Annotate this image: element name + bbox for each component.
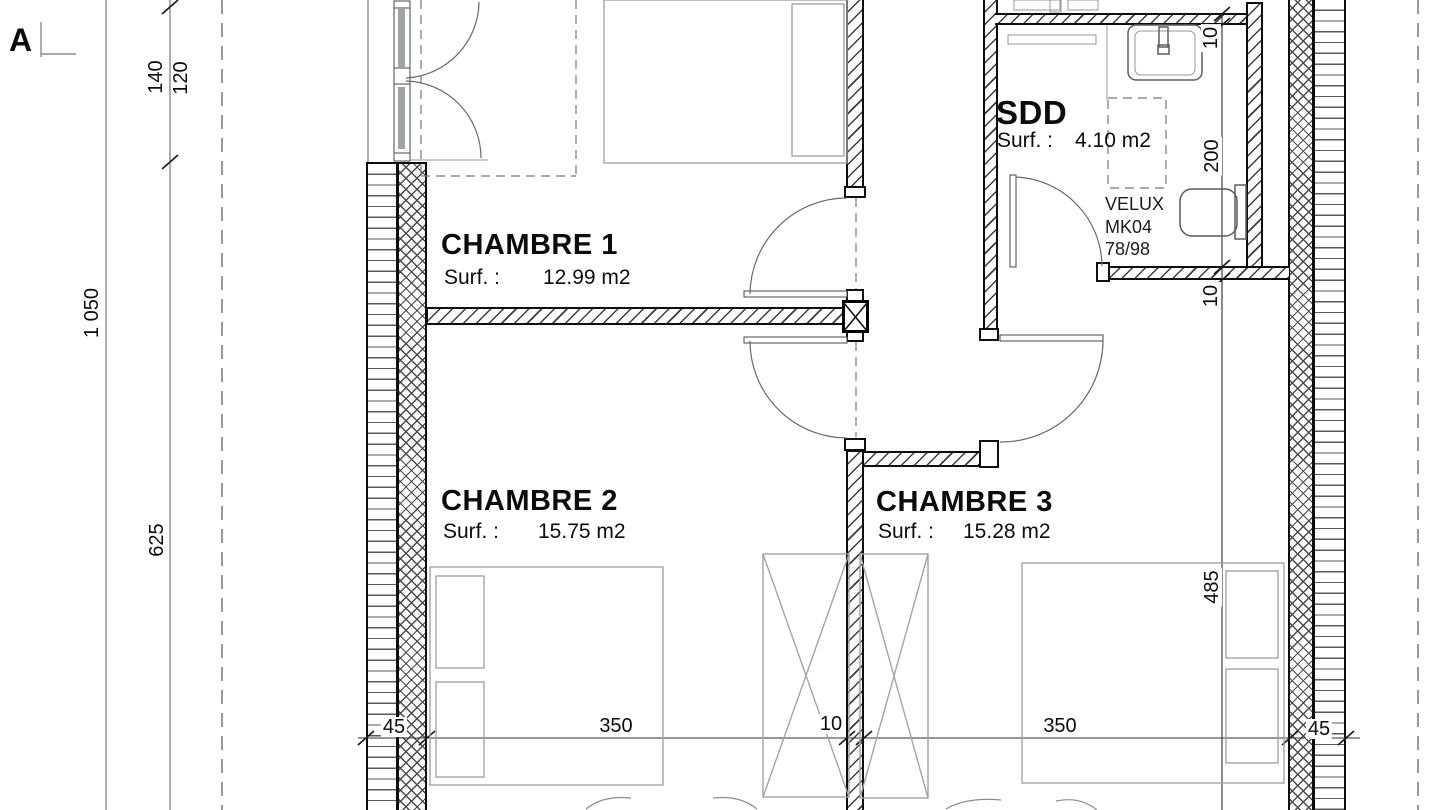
velux-label-line3: 78/98: [1105, 240, 1150, 258]
jamb-center-upper: [844, 186, 866, 198]
room-label-chambre2: CHAMBRE 2: [441, 487, 618, 516]
dim-350-right: 350: [1041, 716, 1078, 736]
section-marker-line: [41, 22, 76, 57]
dim-1050: 1 050: [82, 285, 102, 341]
wall-sdd-bottom: [1108, 266, 1289, 280]
bottom-door-arcs: [586, 797, 1097, 810]
door-arc-chambre1: [750, 198, 847, 294]
vanity-units: [1014, 0, 1098, 12]
dim-350-left: 350: [597, 716, 634, 736]
wall-exterior-right-inner-layer: [1288, 0, 1314, 810]
dim-120: 120: [171, 58, 191, 97]
surface-label-chambre2: Surf. :: [443, 521, 499, 542]
wardrobe-chambre2: [763, 554, 849, 797]
surface-label-chambre1: Surf. :: [444, 267, 500, 288]
wall-exterior-right-outer-layer: [1313, 0, 1346, 810]
room-label-chambre3: CHAMBRE 3: [876, 488, 1053, 517]
bed-chambre2: [430, 567, 663, 785]
wall-center-lower: [846, 450, 864, 810]
dim-485: 485: [1202, 567, 1222, 606]
dim-625: 625: [147, 520, 167, 559]
floor-plan-linework: [0, 0, 1440, 810]
door-arc-chambre2: [750, 341, 847, 438]
dashed-closet-outline: [421, 0, 576, 176]
jamb-sdd-door: [1096, 262, 1110, 282]
sink: [1128, 25, 1202, 80]
velux-label-line2: MK04: [1105, 218, 1152, 236]
bed-chambre3: [1022, 563, 1284, 783]
surface-value-chambre3: 15.28 m2: [963, 521, 1051, 542]
wardrobe-chambre3: [860, 554, 928, 798]
section-marker-label: A: [9, 24, 32, 56]
structural-post: [842, 300, 869, 333]
jamb-hall-corner: [979, 440, 999, 468]
jamb-hall-east: [979, 328, 999, 341]
reference-lines: [106, 0, 1418, 810]
wall-chambre1-south: [426, 307, 846, 325]
dimension-lines: [162, 0, 1360, 810]
surface-label-sdd: Surf. :: [997, 130, 1053, 151]
wall-exterior-left-outer-layer: [366, 162, 398, 810]
floor-plan: A CHAMBRE 1 Surf. : 12.99 m2 CHAMBRE 2 S…: [0, 0, 1440, 810]
surface-value-chambre2: 15.75 m2: [538, 521, 626, 542]
dim-10-mid: 10: [1201, 282, 1221, 310]
jamb-center-lower: [844, 438, 866, 451]
wall-sdd-right: [1246, 2, 1263, 270]
room-label-chambre1: CHAMBRE 1: [441, 231, 618, 260]
door-arc-chambre3: [1000, 341, 1103, 442]
wall-sdd-top: [995, 13, 1263, 25]
dim-10-top: 10: [1201, 24, 1221, 52]
wall-hall-south: [864, 451, 982, 467]
towel-rail: [1008, 35, 1096, 44]
dim-45-right: 45: [1306, 719, 1332, 739]
surface-value-sdd: 4.10 m2: [1075, 130, 1151, 151]
wall-exterior-left-inner-layer: [397, 162, 427, 810]
wall-hall-east: [983, 0, 998, 328]
french-window: [394, 1, 488, 161]
room-label-sdd: SDD: [996, 96, 1067, 129]
wall-center-upper: [846, 0, 864, 188]
surface-label-chambre3: Surf. :: [878, 521, 934, 542]
surface-value-chambre1: 12.99 m2: [543, 267, 631, 288]
dim-45-left: 45: [381, 717, 407, 737]
bed-chambre1: [604, 0, 847, 163]
toilet: [1180, 185, 1246, 239]
dim-140: 140: [146, 57, 166, 96]
velux-label-line1: VELUX: [1105, 195, 1164, 213]
door-arc-sdd: [1016, 177, 1102, 266]
dim-200: 200: [1202, 136, 1222, 175]
dim-10-bottom: 10: [818, 714, 844, 734]
